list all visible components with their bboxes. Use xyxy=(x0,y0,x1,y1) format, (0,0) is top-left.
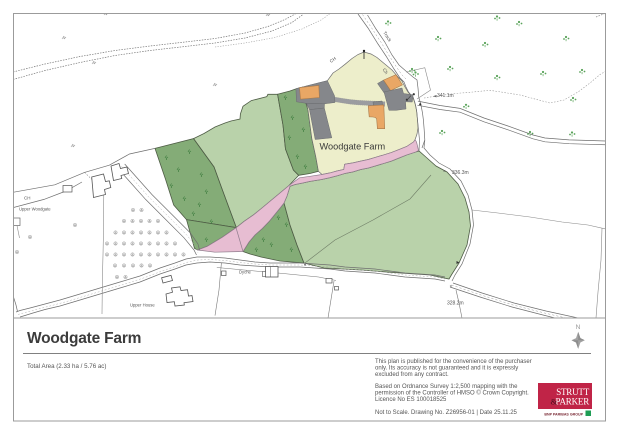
svg-text:328.2m: 328.2m xyxy=(447,301,464,307)
svg-text:N: N xyxy=(576,324,581,331)
svg-text:permission of the Controller o: permission of the Controller of HMSO © C… xyxy=(375,390,529,397)
svg-text:×: × xyxy=(443,169,446,174)
svg-text:Woodgate Farm: Woodgate Farm xyxy=(320,142,386,152)
svg-text:336.3m: 336.3m xyxy=(452,170,469,176)
svg-text:341.1m: 341.1m xyxy=(437,93,454,99)
svg-text:Based on Ordnance Survey 1:2,5: Based on Ordnance Survey 1:2,500 mapping… xyxy=(375,384,518,390)
svg-text:Total Area (2.33 ha / 5.76 ac): Total Area (2.33 ha / 5.76 ac) xyxy=(27,363,106,370)
svg-text:PARKER: PARKER xyxy=(556,397,590,407)
svg-text:CH: CH xyxy=(24,196,31,201)
svg-text:Upper House: Upper House xyxy=(130,303,155,308)
svg-text:BNP PARIBAS GROUP: BNP PARIBAS GROUP xyxy=(544,413,583,417)
svg-text:Not to Scale. Drawing No. Z269: Not to Scale. Drawing No. Z26956-01 | Da… xyxy=(375,410,518,416)
svg-text:only. Its accuracy is not guar: only. Its accuracy is not guaranteed and… xyxy=(375,366,518,372)
svg-text:Licence No ES 100018525: Licence No ES 100018525 xyxy=(375,397,447,403)
svg-text:×: × xyxy=(450,284,453,289)
svg-text:Dyche: Dyche xyxy=(239,270,252,275)
svg-text:Woodgate Farm: Woodgate Farm xyxy=(27,330,141,347)
svg-text:&: & xyxy=(551,397,558,407)
svg-text:This plan is published for the: This plan is published for the convenien… xyxy=(375,359,532,365)
svg-text:excluded from any contract.: excluded from any contract. xyxy=(375,372,449,378)
svg-text:Upper Woodgate: Upper Woodgate xyxy=(19,207,51,212)
svg-text:STRUTT: STRUTT xyxy=(556,387,590,397)
